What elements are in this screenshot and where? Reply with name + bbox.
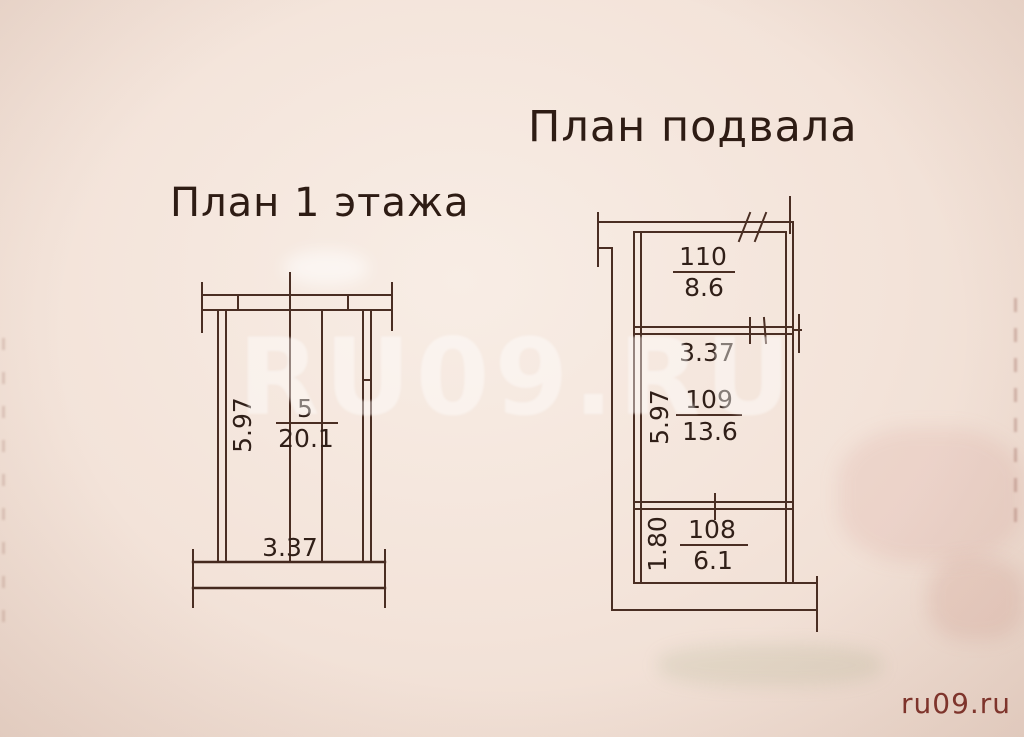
basement-bottom-wall xyxy=(612,577,817,631)
room109-area: 13.6 xyxy=(682,417,738,446)
floorplan-drawing: 5.97 5 20.1 3.37 xyxy=(0,0,1024,737)
room108-height-dimension: 1.80 xyxy=(643,516,672,572)
room110-number: 110 xyxy=(679,242,727,271)
bleedthrough-artifact xyxy=(1014,298,1017,534)
basement-plan: 110 8.6 3.37 5.97 109 13.6 1.80 108 6.1 xyxy=(598,197,817,631)
basement-window-marks xyxy=(739,213,766,241)
floor1-width-dimension: 3.37 xyxy=(262,533,318,562)
floor1-room-area: 20.1 xyxy=(278,424,334,453)
floor1-height-dimension: 5.97 xyxy=(228,397,257,453)
floor1-plan: 5.97 5 20.1 3.37 xyxy=(193,273,392,607)
floor1-room-number: 5 xyxy=(297,394,313,423)
basement-labels: 110 8.6 3.37 5.97 109 13.6 1.80 108 6.1 xyxy=(643,242,747,575)
bleedthrough-artifact xyxy=(2,338,5,622)
floor1-left-wall xyxy=(218,310,226,562)
room108-area: 6.1 xyxy=(693,546,733,575)
floor1-labels: 5.97 5 20.1 3.37 xyxy=(228,394,337,562)
scanned-floorplan-page: План 1 этажа План подвала xyxy=(0,0,1024,737)
room110-area: 8.6 xyxy=(684,273,724,302)
room109-height-dimension: 5.97 xyxy=(645,389,674,445)
floor1-right-wall xyxy=(363,310,371,562)
room109-number: 109 xyxy=(685,385,733,414)
room108-number: 108 xyxy=(688,515,736,544)
room109-width-dimension: 3.37 xyxy=(679,338,735,367)
ru09-corner-watermark: ru09.ru xyxy=(901,687,1011,720)
